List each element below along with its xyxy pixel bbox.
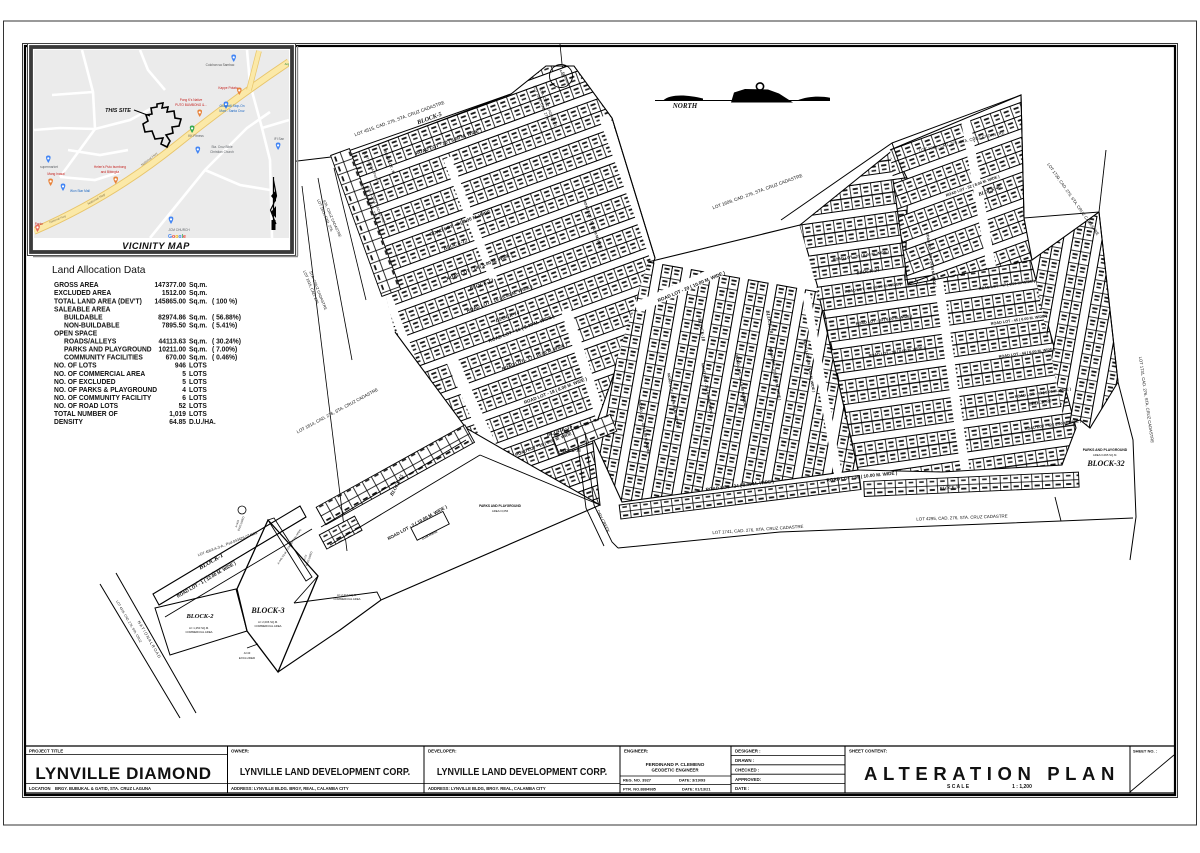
svg-text:Sq.m.: Sq.m. [189,321,207,329]
svg-text:CHECKED :: CHECKED : [735,767,760,772]
svg-text:Kappe Potato: Kappe Potato [218,86,238,90]
svg-text:S C A L E: S C A L E [947,784,970,790]
svg-text:Arg: Arg [285,62,290,66]
svg-text:Sta. Cruz Bible: Sta. Cruz Bible [211,145,232,149]
svg-text:145865.00: 145865.00 [154,297,186,305]
svg-text:SHEET CONTENT:: SHEET CONTENT: [849,749,888,754]
svg-text:APPROVED:: APPROVED: [735,777,762,782]
svg-text:OWNER:: OWNER: [231,749,250,754]
svg-text:DRAWN :: DRAWN : [735,758,755,763]
svg-text:BRGY. BUBUKAL & GATID, STA: BRGY. BUBUKAL & GATID, STA. CRUZ LAGUNA [55,786,151,791]
svg-text:and Bibingka: and Bibingka [101,170,120,174]
svg-text:EXCLUDED: EXCLUDED [239,656,256,660]
svg-text:D.U./HA.: D.U./HA. [189,418,216,426]
svg-text:BLOCK-32: BLOCK-32 [1086,459,1124,468]
svg-text:Won Star Mall: Won Star Mall [70,189,90,193]
svg-text:Mart - Santa Cruz: Mart - Santa Cruz [219,109,245,113]
svg-text:SHEET NO. :: SHEET NO. : [1133,749,1157,754]
svg-text:DEVELOPER:: DEVELOPER: [428,749,457,754]
svg-text:GEODETIC ENGINEER: GEODETIC ENGINEER [651,768,699,773]
svg-text:Christian Church: Christian Church [210,150,234,154]
svg-text:ADDRESS: LYNVILLE BLDG. BRG: ADDRESS: LYNVILLE BLDG. BRGY, REAL, CALA… [231,786,349,791]
svg-text:PTR. NO.8884985: PTR. NO.8884985 [623,787,657,792]
svg-text:ADDRESS: LYNVILLE BLDG, BRG: ADDRESS: LYNVILLE BLDG, BRGY. REAL, CALA… [428,786,546,791]
svg-text:DATE: 01/13/21: DATE: 01/13/21 [682,787,711,792]
svg-text:LYNVILLE LAND DEVELOPMENT CORP: LYNVILLE LAND DEVELOPMENT CORP. [240,767,410,779]
svg-text:Helen's Puto bumbong: Helen's Puto bumbong [94,165,126,169]
svg-text:COMMERCIAL AREA: COMMERCIAL AREA [185,630,212,634]
svg-text:AREA=3,056: AREA=3,056 [492,509,509,513]
svg-text:REG. NO. 3927: REG. NO. 3927 [623,778,652,783]
svg-text:Colohan sa Sambac: Colohan sa Sambac [206,63,235,67]
svg-text:IFI San: IFI San [274,137,285,141]
svg-text:A=43: A=43 [244,651,251,655]
svg-text:KK Fitness: KK Fitness [188,134,204,138]
svg-text:Sq.m.: Sq.m. [189,297,207,305]
svg-text:BLOCK-3: BLOCK-3 [250,606,284,615]
svg-text:BLOCK-2: BLOCK-2 [185,613,214,620]
svg-text:( 0.46%): ( 0.46%) [212,353,238,361]
svg-text:COMMERCIAL AREA: COMMERCIAL AREA [254,624,281,628]
svg-text:ALTERATION PLAN: ALTERATION PLAN [864,763,1120,784]
svg-text:ENGINEER:: ENGINEER: [624,749,649,754]
svg-text:THIS SITE: THIS SITE [105,108,131,114]
svg-text:DENSITY: DENSITY [54,418,83,426]
svg-text:LOCATION: LOCATION [29,786,51,791]
svg-text:NORTH: NORTH [672,102,698,110]
svg-text:JCM CHURCH: JCM CHURCH [168,228,190,232]
svg-text:supermarket: supermarket [40,165,58,169]
svg-text:Pong K's Native: Pong K's Native [180,98,203,102]
svg-text:Land Allocation Data: Land Allocation Data [52,265,146,276]
svg-text:7895.50: 7895.50 [162,321,186,329]
svg-text:LYNVILLE DIAMOND: LYNVILLE DIAMOND [35,764,211,783]
svg-text:DATE: 3/19/93: DATE: 3/19/93 [679,778,706,783]
svg-text:VICINITY MAP: VICINITY MAP [122,240,190,251]
svg-text:Goodwill Stop-On: Goodwill Stop-On [220,104,245,108]
svg-text:PARKS AND PLAYGROUND: PARKS AND PLAYGROUND [479,504,522,508]
svg-text:PARKS AND PLAYGROUND: PARKS AND PLAYGROUND [1083,448,1128,452]
svg-text:64.85: 64.85 [169,418,186,426]
svg-text:BLOCK-16: BLOCK-16 [558,448,581,453]
svg-text:Parlor: Parlor [35,222,44,226]
svg-text:DESIGNER :: DESIGNER : [735,749,761,754]
svg-text:AREA=1095 SQ.M.: AREA=1095 SQ.M. [1093,453,1117,457]
svg-text:PROJECT TITLE: PROJECT TITLE [29,749,63,754]
svg-text:DATE :: DATE : [735,786,750,791]
svg-text:( 5.41%): ( 5.41%) [212,321,238,329]
svg-text:( 100 %): ( 100 %) [212,297,238,305]
svg-text:1 : 1,200: 1 : 1,200 [1012,784,1032,790]
svg-text:PUTO BUMBONG &...: PUTO BUMBONG &... [175,103,207,107]
svg-text:LYNVILLE LAND DEVELOPMENT CORP: LYNVILLE LAND DEVELOPMENT CORP. [437,767,607,779]
svg-text:Mang Inasal: Mang Inasal [47,172,65,176]
